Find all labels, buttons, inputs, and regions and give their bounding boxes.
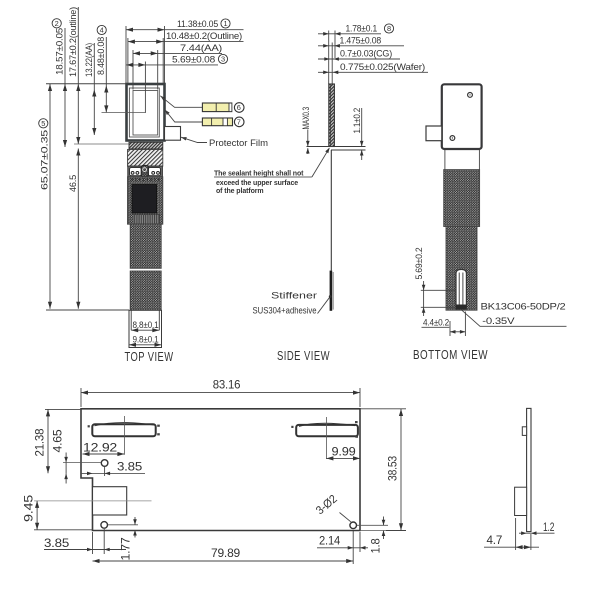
svg-text:4.4±0.2: 4.4±0.2 bbox=[423, 318, 449, 328]
svg-text:18.57±0.05: 18.57±0.05 bbox=[55, 28, 65, 75]
svg-text:of the platform: of the platform bbox=[216, 188, 264, 195]
svg-text:4.7: 4.7 bbox=[487, 534, 503, 547]
svg-text:0.775±0.025(Wafer): 0.775±0.025(Wafer) bbox=[340, 62, 425, 72]
svg-text:9.45: 9.45 bbox=[23, 494, 36, 522]
svg-text:3.85: 3.85 bbox=[44, 537, 70, 550]
svg-text:9.99: 9.99 bbox=[332, 446, 356, 459]
svg-text:1.475±0.08: 1.475±0.08 bbox=[340, 36, 382, 46]
svg-text:BK13C06-50DP/2: BK13C06-50DP/2 bbox=[481, 301, 566, 312]
svg-text:11.38±0.05: 11.38±0.05 bbox=[177, 19, 218, 29]
svg-text:0.7±0.03(CG): 0.7±0.03(CG) bbox=[340, 49, 392, 59]
svg-text:65.07±0.35: 65.07±0.35 bbox=[40, 130, 50, 190]
svg-text:5: 5 bbox=[41, 119, 45, 128]
svg-text:SIDE VIEW: SIDE VIEW bbox=[277, 349, 330, 363]
svg-text:1.78±0.1: 1.78±0.1 bbox=[346, 24, 378, 34]
svg-text:13.22(AA): 13.22(AA) bbox=[84, 43, 94, 77]
svg-text:The sealant height shall not: The sealant height shall not bbox=[214, 171, 304, 178]
svg-text:8: 8 bbox=[387, 24, 391, 33]
svg-text:1.2: 1.2 bbox=[543, 521, 554, 534]
svg-text:8.48±0.08: 8.48±0.08 bbox=[96, 37, 106, 75]
svg-text:1.8: 1.8 bbox=[370, 539, 383, 554]
svg-text:79.89: 79.89 bbox=[211, 547, 240, 560]
svg-text:2: 2 bbox=[55, 19, 59, 28]
svg-text:TOP VIEW: TOP VIEW bbox=[125, 350, 174, 364]
svg-text:4.65: 4.65 bbox=[52, 429, 65, 453]
svg-text:83.16: 83.16 bbox=[213, 379, 241, 392]
svg-text:MAX0.3: MAX0.3 bbox=[301, 107, 311, 130]
svg-text:5.69±0.08: 5.69±0.08 bbox=[172, 55, 215, 65]
svg-text:8.8±0.1: 8.8±0.1 bbox=[133, 320, 159, 330]
svg-text:2.14: 2.14 bbox=[319, 535, 341, 548]
svg-text:10.48±0.2(Outline): 10.48±0.2(Outline) bbox=[166, 31, 242, 41]
svg-text:5.69±0.2: 5.69±0.2 bbox=[414, 247, 424, 279]
svg-text:Stiffener: Stiffener bbox=[271, 291, 317, 301]
svg-text:12.92: 12.92 bbox=[83, 441, 117, 454]
svg-text:21.38: 21.38 bbox=[34, 429, 47, 457]
svg-text:1.1±0.2: 1.1±0.2 bbox=[352, 108, 362, 134]
svg-text:4: 4 bbox=[100, 26, 104, 35]
svg-text:7.44(AA): 7.44(AA) bbox=[180, 43, 222, 53]
svg-text:1: 1 bbox=[223, 19, 227, 28]
svg-text:7: 7 bbox=[237, 118, 241, 127]
svg-text:3.85: 3.85 bbox=[117, 461, 143, 474]
svg-text:SUS304+adhesive: SUS304+adhesive bbox=[253, 306, 317, 316]
svg-text:9.8±0.1: 9.8±0.1 bbox=[133, 335, 159, 345]
svg-text:BOTTOM VIEW: BOTTOM VIEW bbox=[413, 348, 488, 362]
svg-text:1.77: 1.77 bbox=[120, 538, 133, 561]
svg-text:6: 6 bbox=[237, 103, 241, 112]
svg-text:3: 3 bbox=[221, 55, 225, 64]
svg-text:46.5: 46.5 bbox=[68, 175, 78, 192]
svg-text:17.67±0.2(outline): 17.67±0.2(outline) bbox=[68, 7, 78, 77]
svg-text:Protector Film: Protector Film bbox=[209, 138, 268, 148]
svg-text:-0.35V: -0.35V bbox=[482, 316, 515, 327]
svg-text:exceed the upper surface: exceed the upper surface bbox=[216, 180, 298, 187]
svg-text:38.53: 38.53 bbox=[387, 456, 400, 481]
